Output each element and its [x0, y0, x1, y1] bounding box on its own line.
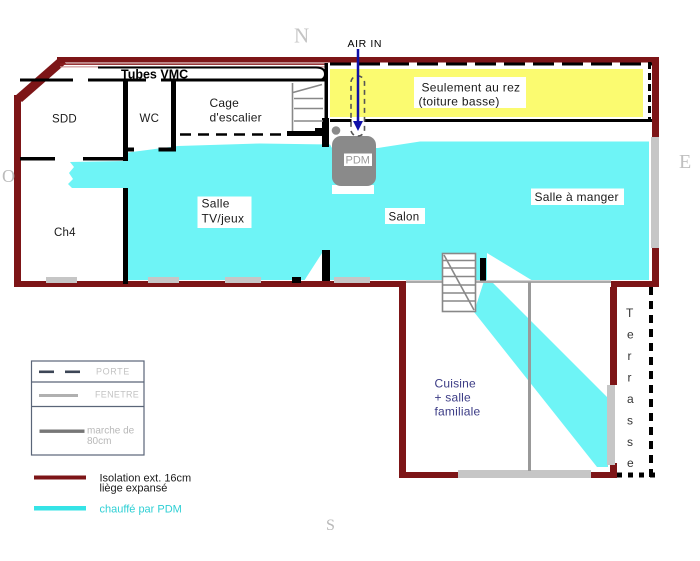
svg-text:T: T — [626, 306, 634, 320]
svg-text:liège expansé: liège expansé — [100, 483, 168, 495]
svg-text:r: r — [628, 349, 632, 363]
svg-text:Cage: Cage — [210, 96, 240, 110]
svg-text:e: e — [627, 456, 634, 470]
svg-text:(toiture basse): (toiture basse) — [419, 95, 500, 109]
svg-text:s: s — [627, 414, 633, 428]
svg-text:d'escalier: d'escalier — [210, 111, 262, 125]
svg-text:O: O — [2, 166, 15, 186]
svg-text:+ salle: + salle — [435, 391, 472, 405]
svg-text:familiale: familiale — [435, 405, 481, 419]
svg-text:SDD: SDD — [52, 114, 77, 126]
svg-text:chauffé par PDM: chauffé par PDM — [100, 504, 182, 516]
svg-text:S: S — [326, 517, 335, 534]
svg-text:Seulement au rez: Seulement au rez — [422, 81, 521, 95]
svg-text:AIR IN: AIR IN — [348, 38, 383, 50]
svg-text:Ch4: Ch4 — [54, 227, 76, 239]
svg-text:PDM: PDM — [346, 155, 370, 167]
svg-text:r: r — [628, 371, 632, 385]
svg-text:FENETRE: FENETRE — [95, 390, 139, 400]
svg-text:Salle: Salle — [202, 197, 230, 211]
svg-text:80cm: 80cm — [87, 436, 111, 447]
svg-text:WC: WC — [140, 113, 160, 125]
svg-text:a: a — [627, 392, 634, 406]
svg-text:Salle à manger: Salle à manger — [535, 190, 619, 204]
svg-text:marche de: marche de — [87, 426, 135, 437]
svg-text:Tubes VMC: Tubes VMC — [121, 68, 188, 82]
svg-text:Salon: Salon — [389, 212, 420, 224]
svg-text:E: E — [679, 151, 691, 173]
svg-text:TV/jeux: TV/jeux — [202, 212, 245, 226]
svg-text:Cuisine: Cuisine — [435, 377, 477, 391]
svg-text:e: e — [627, 328, 634, 342]
svg-text:s: s — [627, 435, 633, 449]
svg-text:PORTE: PORTE — [96, 367, 130, 377]
svg-text:N: N — [294, 24, 309, 48]
